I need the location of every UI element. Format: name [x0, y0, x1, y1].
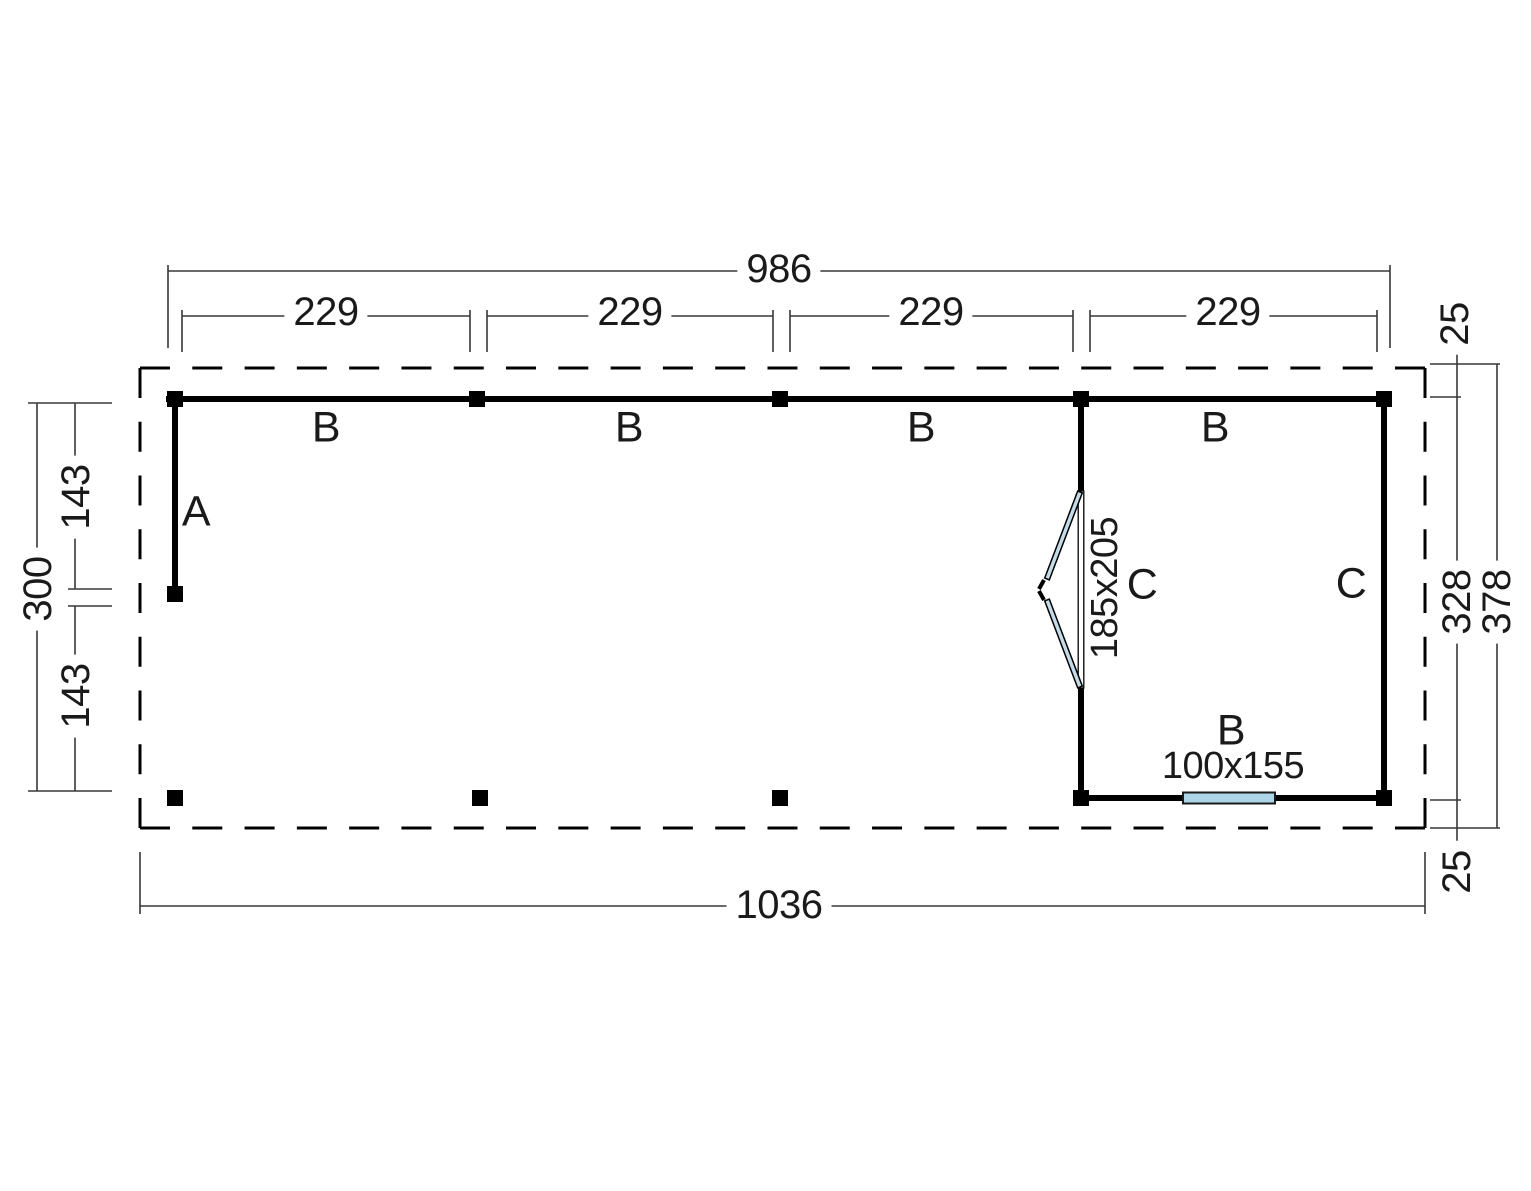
- label-beam-b-4: B: [1201, 407, 1229, 450]
- label-c-door: C: [1127, 564, 1158, 607]
- post: [472, 790, 488, 806]
- dim-986: 986: [737, 249, 820, 289]
- walls: [166, 396, 1391, 798]
- post: [167, 790, 183, 806]
- door-leaf-top: [1045, 491, 1083, 580]
- dimension-lines: [28, 265, 1500, 914]
- post: [1073, 391, 1089, 407]
- dim-229-2: 229: [588, 292, 671, 332]
- dim-229-1: 229: [284, 292, 367, 332]
- dim-25-top: 25: [1435, 293, 1475, 355]
- post: [167, 391, 183, 407]
- dim-25-bottom: 25: [1437, 841, 1477, 903]
- dim-1036: 1036: [727, 885, 832, 925]
- door-leaf-bottom: [1045, 599, 1083, 688]
- plan-drawing: [0, 0, 1531, 1191]
- label-c-side: C: [1336, 563, 1367, 606]
- post: [772, 790, 788, 806]
- posts: [167, 391, 1392, 806]
- post: [469, 391, 485, 407]
- door-opening-frame: [1078, 491, 1084, 688]
- dim-143-upper: 143: [56, 455, 96, 538]
- window: [1183, 793, 1275, 804]
- dim-143-lower: 143: [56, 654, 96, 737]
- post: [772, 391, 788, 407]
- door-size-label: 185x205: [1086, 511, 1124, 665]
- label-wall-a: A: [182, 491, 210, 534]
- door-swing-dash-bottom: [1039, 591, 1044, 600]
- post: [1073, 790, 1089, 806]
- door-swing-dash-top: [1039, 580, 1044, 589]
- dim-378: 378: [1477, 560, 1517, 643]
- dim-328: 328: [1437, 560, 1477, 643]
- dim-229-3: 229: [889, 292, 972, 332]
- floor-plan-canvas: 986 229 229 229 229 25 328 378 25 300 14…: [0, 0, 1531, 1191]
- label-beam-b-2: B: [615, 407, 643, 450]
- label-beam-b-1: B: [312, 407, 340, 450]
- window-size-label: 100x155: [1156, 747, 1310, 785]
- dim-229-4: 229: [1186, 292, 1269, 332]
- dim-300: 300: [18, 547, 58, 630]
- post: [1376, 790, 1392, 806]
- post: [1376, 391, 1392, 407]
- post: [167, 586, 183, 602]
- double-door: [1039, 491, 1084, 688]
- label-beam-b-3: B: [907, 407, 935, 450]
